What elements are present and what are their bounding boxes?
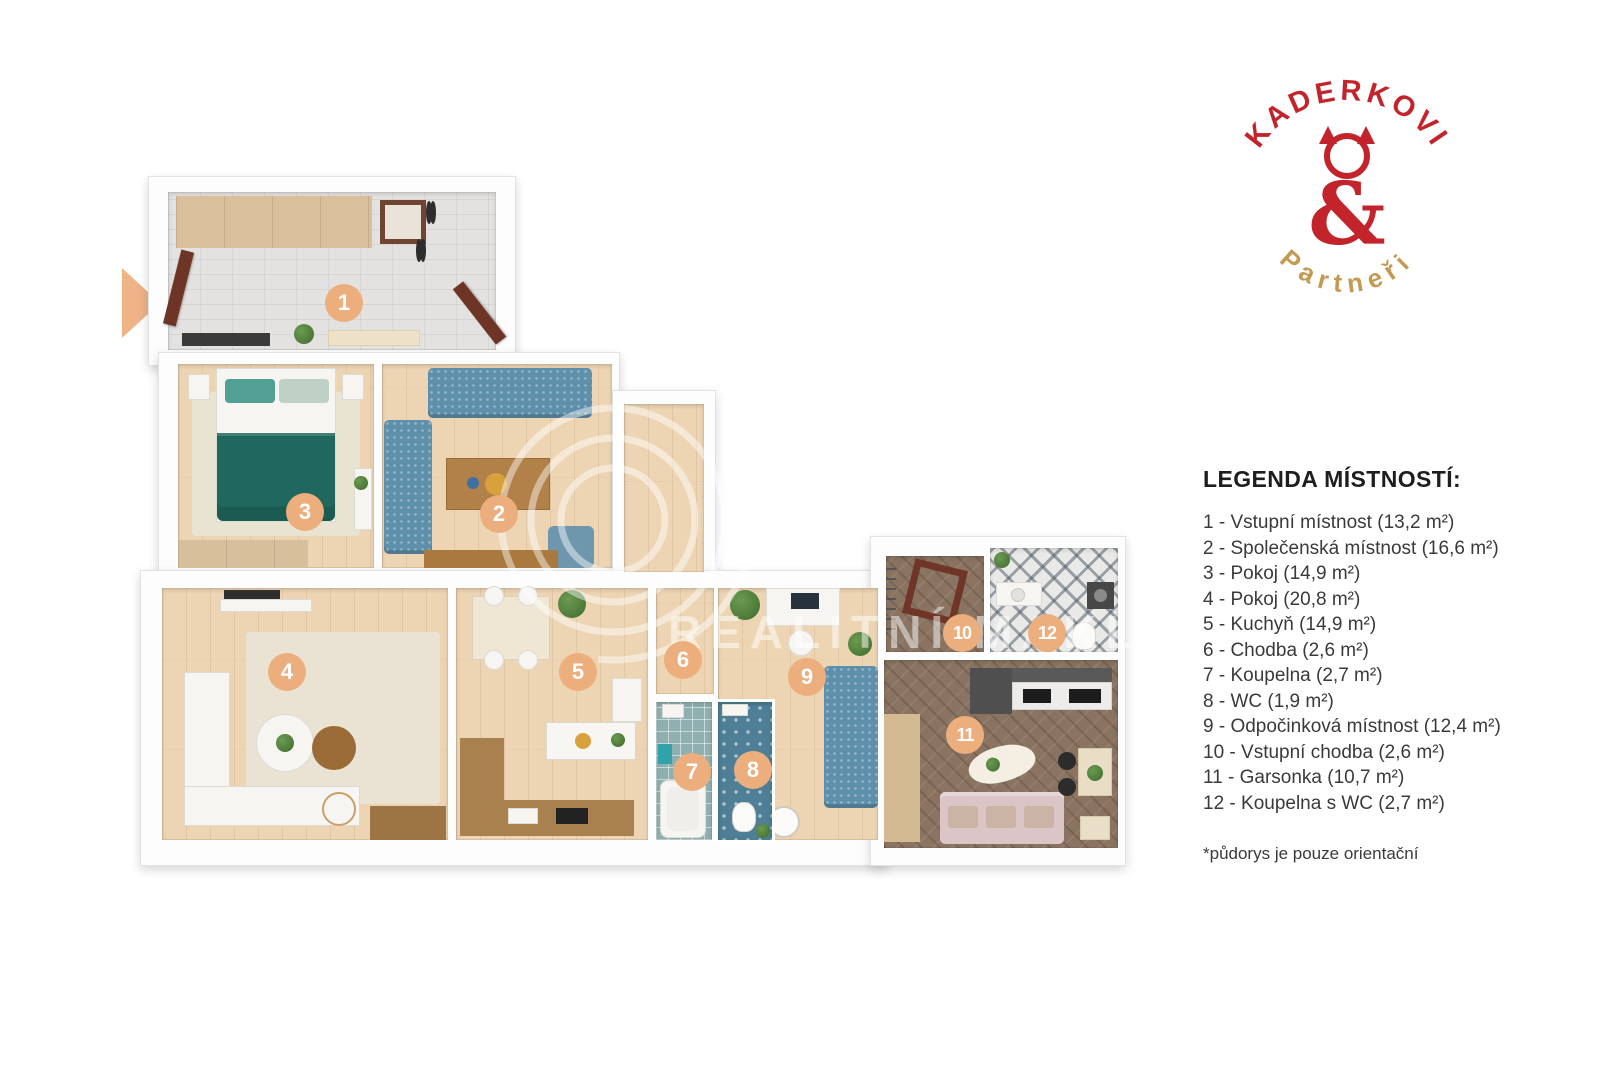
legend-item: 9 - Odpočinková místnost (12,4 m²) (1203, 714, 1593, 740)
hallway-upper (624, 404, 704, 572)
plant-icon (276, 734, 294, 752)
toilet (1072, 622, 1096, 650)
cushion (1024, 806, 1054, 828)
ceiling-fan-icon (322, 792, 356, 826)
chair (518, 586, 538, 606)
legend-item: 11 - Garsonka (10,7 m²) (1203, 765, 1593, 791)
ampersand-cat-icon: & (1308, 164, 1386, 265)
legend-list: 1 - Vstupní místnost (13,2 m²)2 - Společ… (1203, 510, 1593, 816)
kitchenette-counter (1012, 682, 1112, 710)
room-legend: LEGENDA MÍSTNOSTÍ: 1 - Vstupní místnost … (1203, 466, 1593, 864)
sofa (428, 368, 592, 418)
plant-icon (558, 590, 586, 618)
chair (484, 650, 504, 670)
room-badge-5: 5 (559, 653, 597, 691)
room-badge-12: 12 (1028, 614, 1066, 652)
plant-icon (730, 590, 760, 620)
legend-item: 12 - Koupelna s WC (2,7 m²) (1203, 791, 1593, 817)
cushion (948, 806, 978, 828)
legend-item: 2 - Společenská místnost (16,6 m²) (1203, 536, 1593, 562)
room-5-kuchyn (456, 588, 648, 840)
plant-icon (848, 632, 872, 656)
dresser (370, 806, 446, 840)
kitchenette-block (970, 668, 1012, 714)
sideboard (424, 550, 558, 568)
shoe-rack (886, 568, 896, 630)
cushion (986, 806, 1016, 828)
room-badge-7: 7 (673, 753, 711, 791)
bench (328, 330, 420, 346)
desk (766, 588, 840, 626)
bike-icon (420, 242, 486, 266)
legend-item: 6 - Chodba (2,6 m²) (1203, 638, 1593, 664)
legend-item: 8 - WC (1,9 m²) (1203, 689, 1593, 715)
plant-icon (294, 324, 314, 344)
plant-icon (354, 476, 368, 490)
room-badge-1: 1 (325, 284, 363, 322)
radiator (182, 333, 270, 346)
nightstand (342, 374, 364, 400)
room-badge-2: 2 (480, 495, 518, 533)
sideboard (884, 714, 920, 842)
legend-item: 4 - Pokoj (20,8 m²) (1203, 587, 1593, 613)
kitchen-counter (460, 800, 634, 836)
washbasin (722, 704, 748, 716)
room-badge-3: 3 (286, 493, 324, 531)
room-badge-11: 11 (946, 716, 984, 754)
legend-item: 10 - Vstupní chodba (2,6 m²) (1203, 740, 1593, 766)
room-11-garsonka (884, 660, 1118, 848)
fridge (612, 678, 642, 722)
legend-title: LEGENDA MÍSTNOSTÍ: (1203, 466, 1593, 493)
legend-footnote: *půdorys je pouze orientační (1203, 844, 1593, 864)
dresser (178, 540, 308, 568)
sofa (940, 792, 1064, 844)
side-table (312, 726, 356, 770)
toilet (732, 802, 756, 832)
pillow (225, 379, 275, 403)
legend-item: 5 - Kuchyň (14,9 m²) (1203, 612, 1593, 638)
sink (1023, 689, 1051, 703)
bike-icon (430, 204, 488, 228)
legend-item: 1 - Vstupní místnost (13,2 m²) (1203, 510, 1593, 536)
chair (1058, 778, 1076, 796)
plant-icon (994, 552, 1010, 568)
room-1-vstupni-mistnost (168, 192, 496, 350)
ceiling-fan-icon (768, 806, 800, 838)
chair (484, 586, 504, 606)
washbasin (662, 704, 684, 718)
office-chair (788, 630, 814, 656)
room-badge-6: 6 (664, 641, 702, 679)
tv (224, 590, 280, 599)
room-2-spolecenska-mistnost (382, 364, 612, 568)
entry-door (163, 250, 194, 327)
room-3-pokoj (178, 364, 374, 568)
floorplan: REALITNÍ MAKLÉŘI 123456789101112 (120, 160, 1130, 866)
sink (508, 808, 538, 824)
sofa (384, 420, 432, 554)
kitchen-island (546, 722, 636, 760)
wardrobe (176, 196, 372, 248)
pillow (279, 379, 329, 403)
desk (1078, 748, 1112, 796)
tv-console (220, 599, 312, 612)
room-badge-9: 9 (788, 658, 826, 696)
sofa (824, 666, 878, 808)
cooktop (556, 808, 588, 824)
brand-name-top: KADERKOVI (1239, 75, 1455, 154)
chair (1058, 752, 1076, 770)
mirror (380, 200, 426, 244)
room-badge-8: 8 (734, 751, 772, 789)
kitchenette-upper (1012, 668, 1112, 682)
dining-table (472, 596, 550, 660)
monitor (791, 593, 819, 609)
room-badge-4: 4 (268, 653, 306, 691)
brand-logo: KADERKOVI & Partneři (1197, 50, 1497, 350)
vanity (996, 582, 1042, 606)
storage-box (1080, 816, 1110, 840)
room-4-pokoj (162, 588, 448, 840)
room-badge-10: 10 (943, 614, 981, 652)
plant-icon (756, 824, 770, 838)
cooktop (1069, 689, 1101, 703)
chair (518, 650, 538, 670)
legend-item: 3 - Pokoj (14,9 m²) (1203, 561, 1593, 587)
legend-item: 7 - Koupelna (2,7 m²) (1203, 663, 1593, 689)
washing-machine (1087, 582, 1114, 609)
cabinet (658, 744, 672, 764)
nightstand (188, 374, 210, 400)
